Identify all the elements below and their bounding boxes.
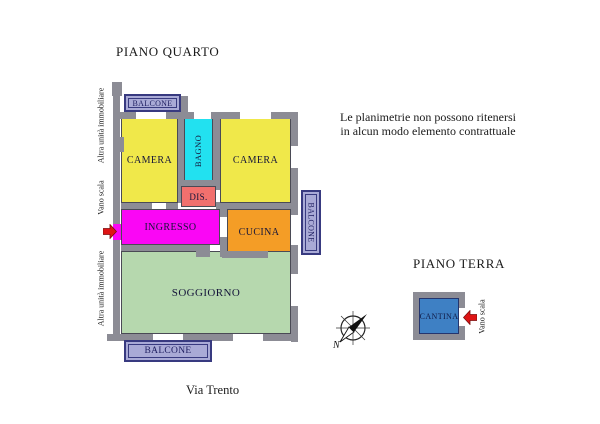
wall-segment xyxy=(113,88,120,341)
entry-arrow-icon xyxy=(103,224,117,239)
street-label: Via Trento xyxy=(186,383,239,398)
room-dis-label: DIS. xyxy=(189,192,207,202)
window-gap xyxy=(291,146,298,168)
room-camera-right: CAMERA xyxy=(220,118,291,203)
balcone-right-label: BALCONE xyxy=(307,203,316,243)
room-cantina: CANTINA xyxy=(419,298,459,334)
wall-segment xyxy=(180,96,188,112)
title-piano-quarto: PIANO QUARTO xyxy=(116,44,219,60)
door-gap xyxy=(152,203,166,209)
balcone-bottom: BALCONE xyxy=(124,340,212,362)
balcone-bottom-label: BALCONE xyxy=(145,346,192,356)
label-vano-scala-left: Vano scala xyxy=(93,176,109,218)
floor-plan-page: PIANO QUARTO Le planimetrie non possono … xyxy=(0,0,600,424)
cantina-arrow-icon xyxy=(463,310,477,325)
door-gap xyxy=(220,217,227,237)
room-soggiorno: SOGGIORNO xyxy=(121,251,291,334)
label-altra-unita-top: Altra unità immobiliare xyxy=(93,84,109,166)
room-bagno: BAGNO xyxy=(184,118,213,183)
balcone-top-label: BALCONE xyxy=(133,99,173,108)
wall-segment xyxy=(121,203,178,209)
wall-segment xyxy=(121,245,198,251)
wall-segment xyxy=(120,137,124,152)
disclaimer-text: Le planimetrie non possono ritenersi in … xyxy=(329,110,527,138)
room-soggiorno-label: SOGGIORNO xyxy=(172,287,240,299)
window-gap xyxy=(233,334,263,341)
disclaimer-line-1: Le planimetrie non possono ritenersi xyxy=(329,110,527,124)
compass-north-label: N xyxy=(332,340,341,351)
disclaimer-line-2: in alcun modo elemento contrattuale xyxy=(329,124,527,138)
room-ingresso: INGRESSO xyxy=(121,209,220,245)
balcone-top: BALCONE xyxy=(124,94,181,112)
door-gap-balcone-right xyxy=(291,215,298,245)
wall-segment xyxy=(216,203,292,209)
window-gap xyxy=(240,112,271,119)
label-altra-unita-bottom: Altra unità immobiliare xyxy=(93,244,109,332)
room-cucina: CUCINA xyxy=(227,209,291,255)
wall-segment xyxy=(222,251,268,258)
room-bagno-label: BAGNO xyxy=(194,134,204,166)
title-piano-terra: PIANO TERRA xyxy=(413,256,505,272)
room-camera-left: CAMERA xyxy=(121,118,178,203)
window-gap xyxy=(291,274,298,306)
window-gap xyxy=(136,112,166,119)
room-camera-left-label: CAMERA xyxy=(127,155,172,166)
window-gap xyxy=(194,112,211,119)
room-ingresso-label: INGRESSO xyxy=(144,222,196,233)
room-camera-right-label: CAMERA xyxy=(233,155,278,166)
balcone-right: BALCONE xyxy=(301,190,321,255)
compass-icon: N xyxy=(331,305,375,351)
room-dis: DIS. xyxy=(181,186,216,207)
room-cantina-label: CANTINA xyxy=(420,312,459,321)
wall-segment xyxy=(196,245,210,257)
room-cucina-label: CUCINA xyxy=(239,227,280,238)
